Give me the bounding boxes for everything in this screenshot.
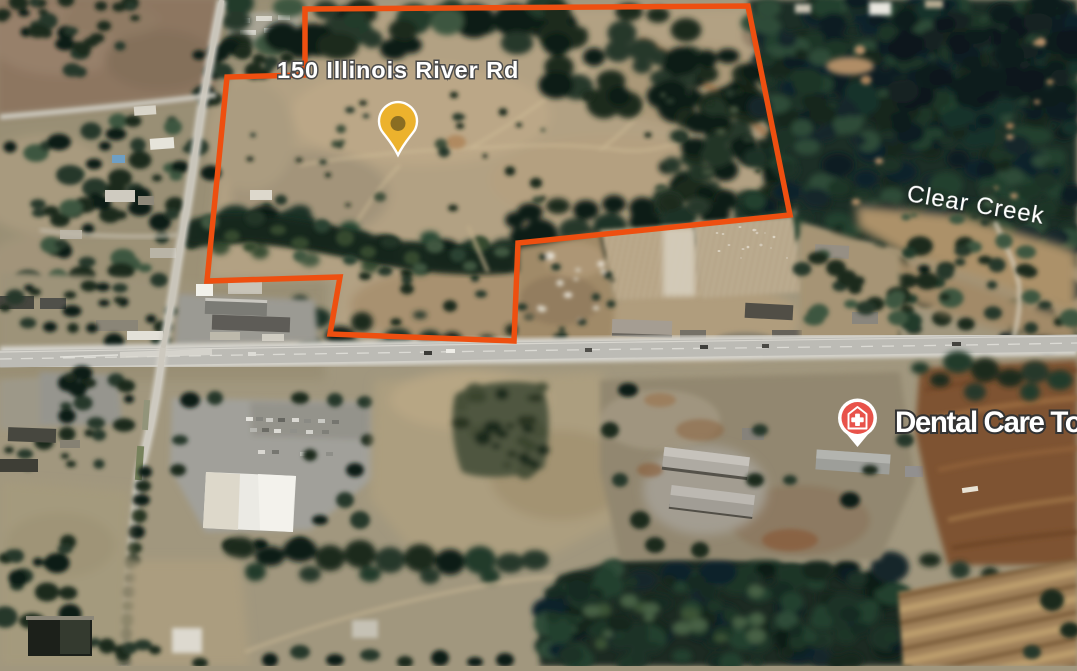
svg-text:150 Illinois River Rd: 150 Illinois River Rd xyxy=(277,57,519,83)
svg-text:Dental Care Too: Dental Care Too xyxy=(895,406,1077,439)
